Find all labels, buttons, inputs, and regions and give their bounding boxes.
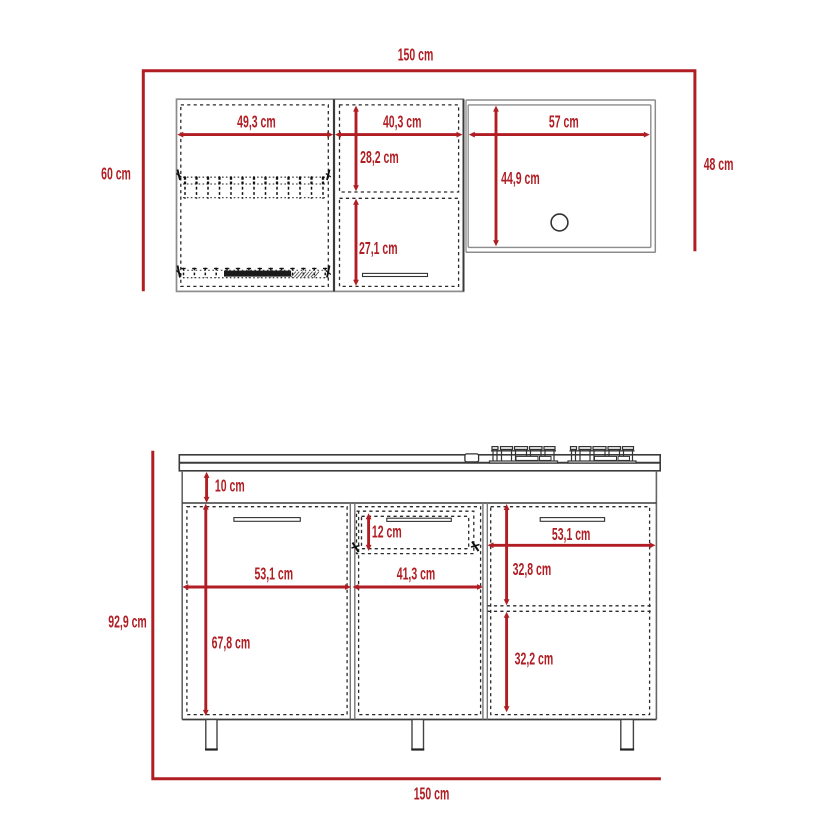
svg-text:60 cm: 60 cm xyxy=(101,165,131,184)
svg-text:150 cm: 150 cm xyxy=(398,46,434,65)
svg-text:48 cm: 48 cm xyxy=(704,155,734,174)
svg-text:49,3 cm: 49,3 cm xyxy=(237,113,276,132)
svg-text:12 cm: 12 cm xyxy=(372,523,402,542)
svg-text:67,8 cm: 67,8 cm xyxy=(212,634,251,653)
svg-text:44,9 cm: 44,9 cm xyxy=(501,170,540,189)
svg-text:32,2 cm: 32,2 cm xyxy=(515,650,554,669)
svg-text:92,9 cm: 92,9 cm xyxy=(108,613,147,632)
svg-text:57 cm: 57 cm xyxy=(549,113,579,132)
svg-text:28,2 cm: 28,2 cm xyxy=(360,149,399,168)
svg-text:53,1 cm: 53,1 cm xyxy=(255,565,294,584)
svg-text:150 cm: 150 cm xyxy=(414,785,450,804)
svg-text:10 cm: 10 cm xyxy=(215,477,245,496)
svg-text:27,1 cm: 27,1 cm xyxy=(359,239,398,258)
svg-text:40,3 cm: 40,3 cm xyxy=(383,113,422,132)
svg-text:53,1 cm: 53,1 cm xyxy=(552,525,591,544)
svg-text:32,8 cm: 32,8 cm xyxy=(513,560,552,579)
svg-text:41,3 cm: 41,3 cm xyxy=(397,565,436,584)
